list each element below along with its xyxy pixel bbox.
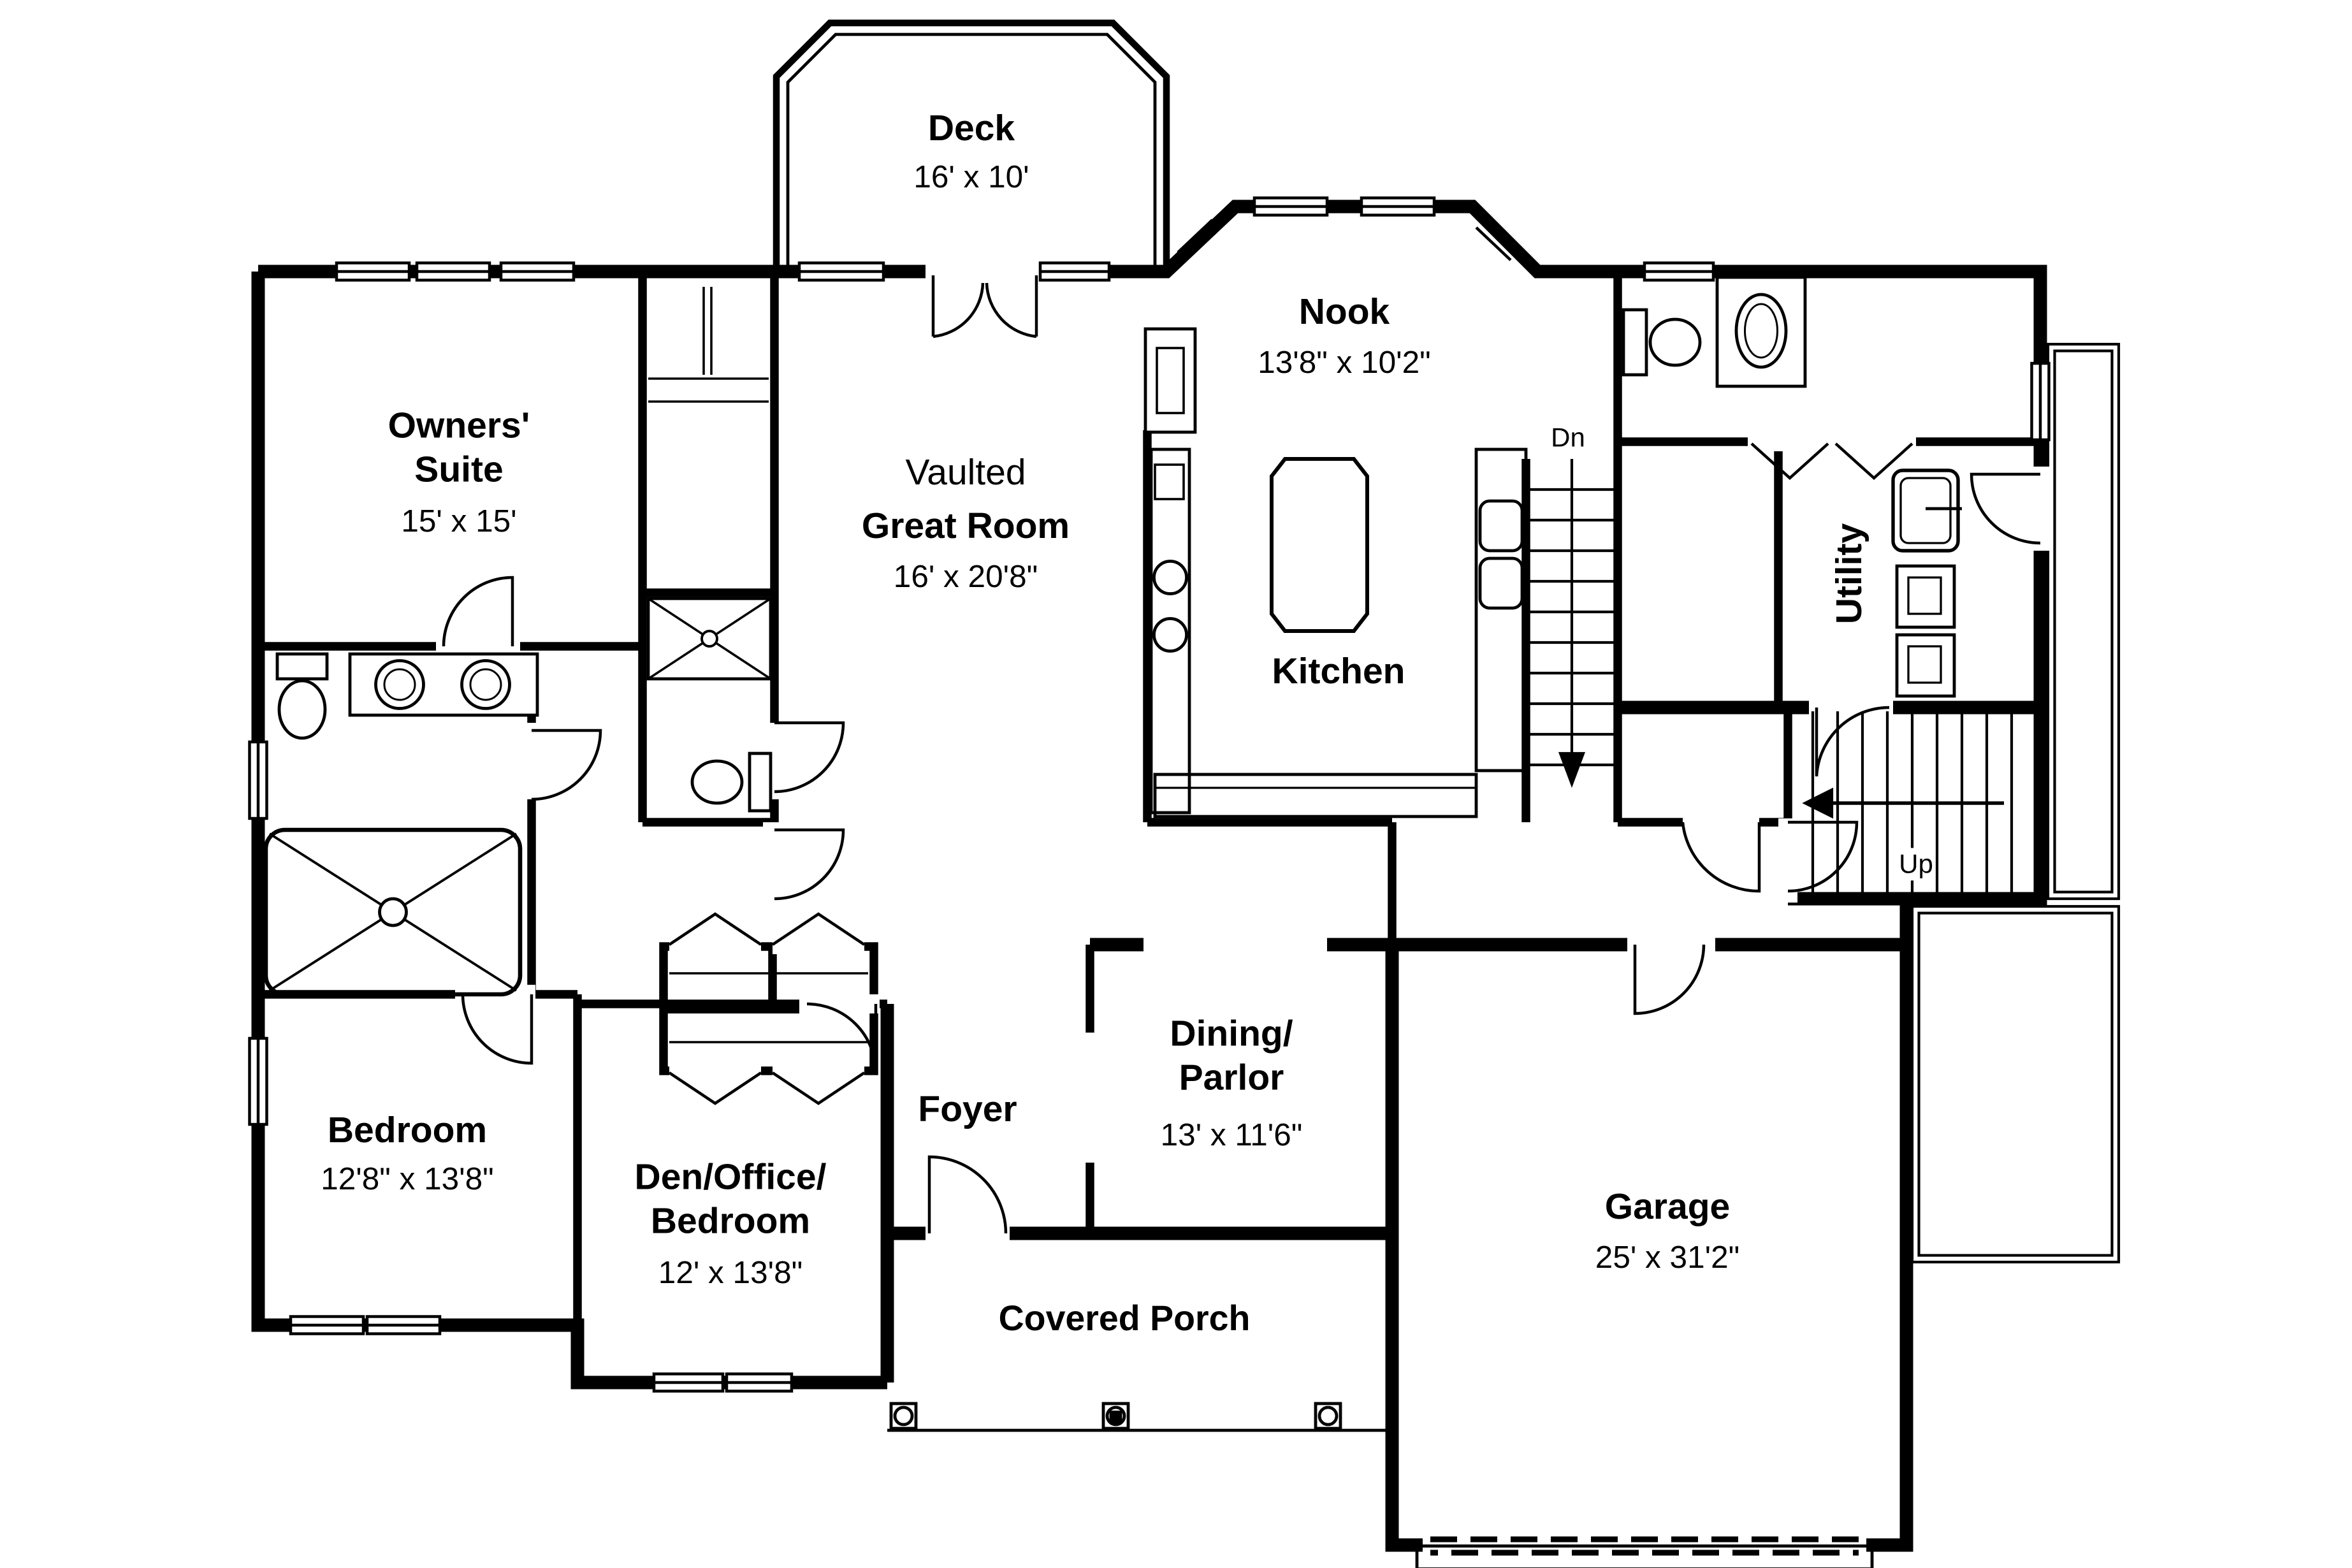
shower-drain-icon [380,899,407,926]
toilet-tank-icon [277,654,327,679]
room-dims-deck: 16' x 10' [913,159,1029,197]
room-label-den: Den/Office/ Bedroom [635,1156,827,1245]
toilet-bowl-icon [279,681,325,738]
room-label-bedroom: Bedroom [328,1110,487,1154]
room-label-foyer: Foyer [918,1089,1017,1133]
toilet-tank-icon [1623,310,1646,375]
room-label-dining: Dining/ Parlor [1170,1013,1293,1101]
stairs-up-label: Up [1897,848,1935,880]
room-dims-dining: 13' x 11'6" [1161,1117,1303,1155]
toilet-bowl-icon [1650,319,1700,365]
toilet-tank-icon [750,753,771,811]
floor-plan-page: Deck 16' x 10' Nook 13'8" x 10'2" Owners… [0,0,2352,1568]
room-prefix-great-room: Vaulted [905,452,1026,497]
room-label-great-room: Great Room [862,505,1070,550]
room-label-kitchen: Kitchen [1272,651,1405,695]
room-label-deck: Deck [928,108,1015,152]
porch-column-center [1111,1412,1121,1422]
stairs-down-label: Dn [1549,421,1587,454]
room-dims-garage: 25' x 31'2" [1595,1239,1739,1277]
media-niche [1145,329,1195,432]
room-dims-bedroom: 12'8" x 13'8" [321,1161,494,1199]
room-dims-den: 12' x 13'8" [658,1254,802,1293]
room-dims-owners-suite: 15' x 15' [401,503,516,541]
room-label-covered-porch: Covered Porch [999,1298,1251,1341]
toilet-bowl-icon [692,761,742,803]
room-label-garage: Garage [1605,1186,1730,1231]
room-dims-nook: 13'8" x 10'2" [1258,344,1431,382]
room-label-nook: Nook [1299,291,1390,336]
room-label-owners-suite: Owners' Suite [346,405,572,493]
room-label-utility: Utility [1829,523,1873,624]
room-dims-great-room: 16' x 20'8" [894,558,1038,597]
